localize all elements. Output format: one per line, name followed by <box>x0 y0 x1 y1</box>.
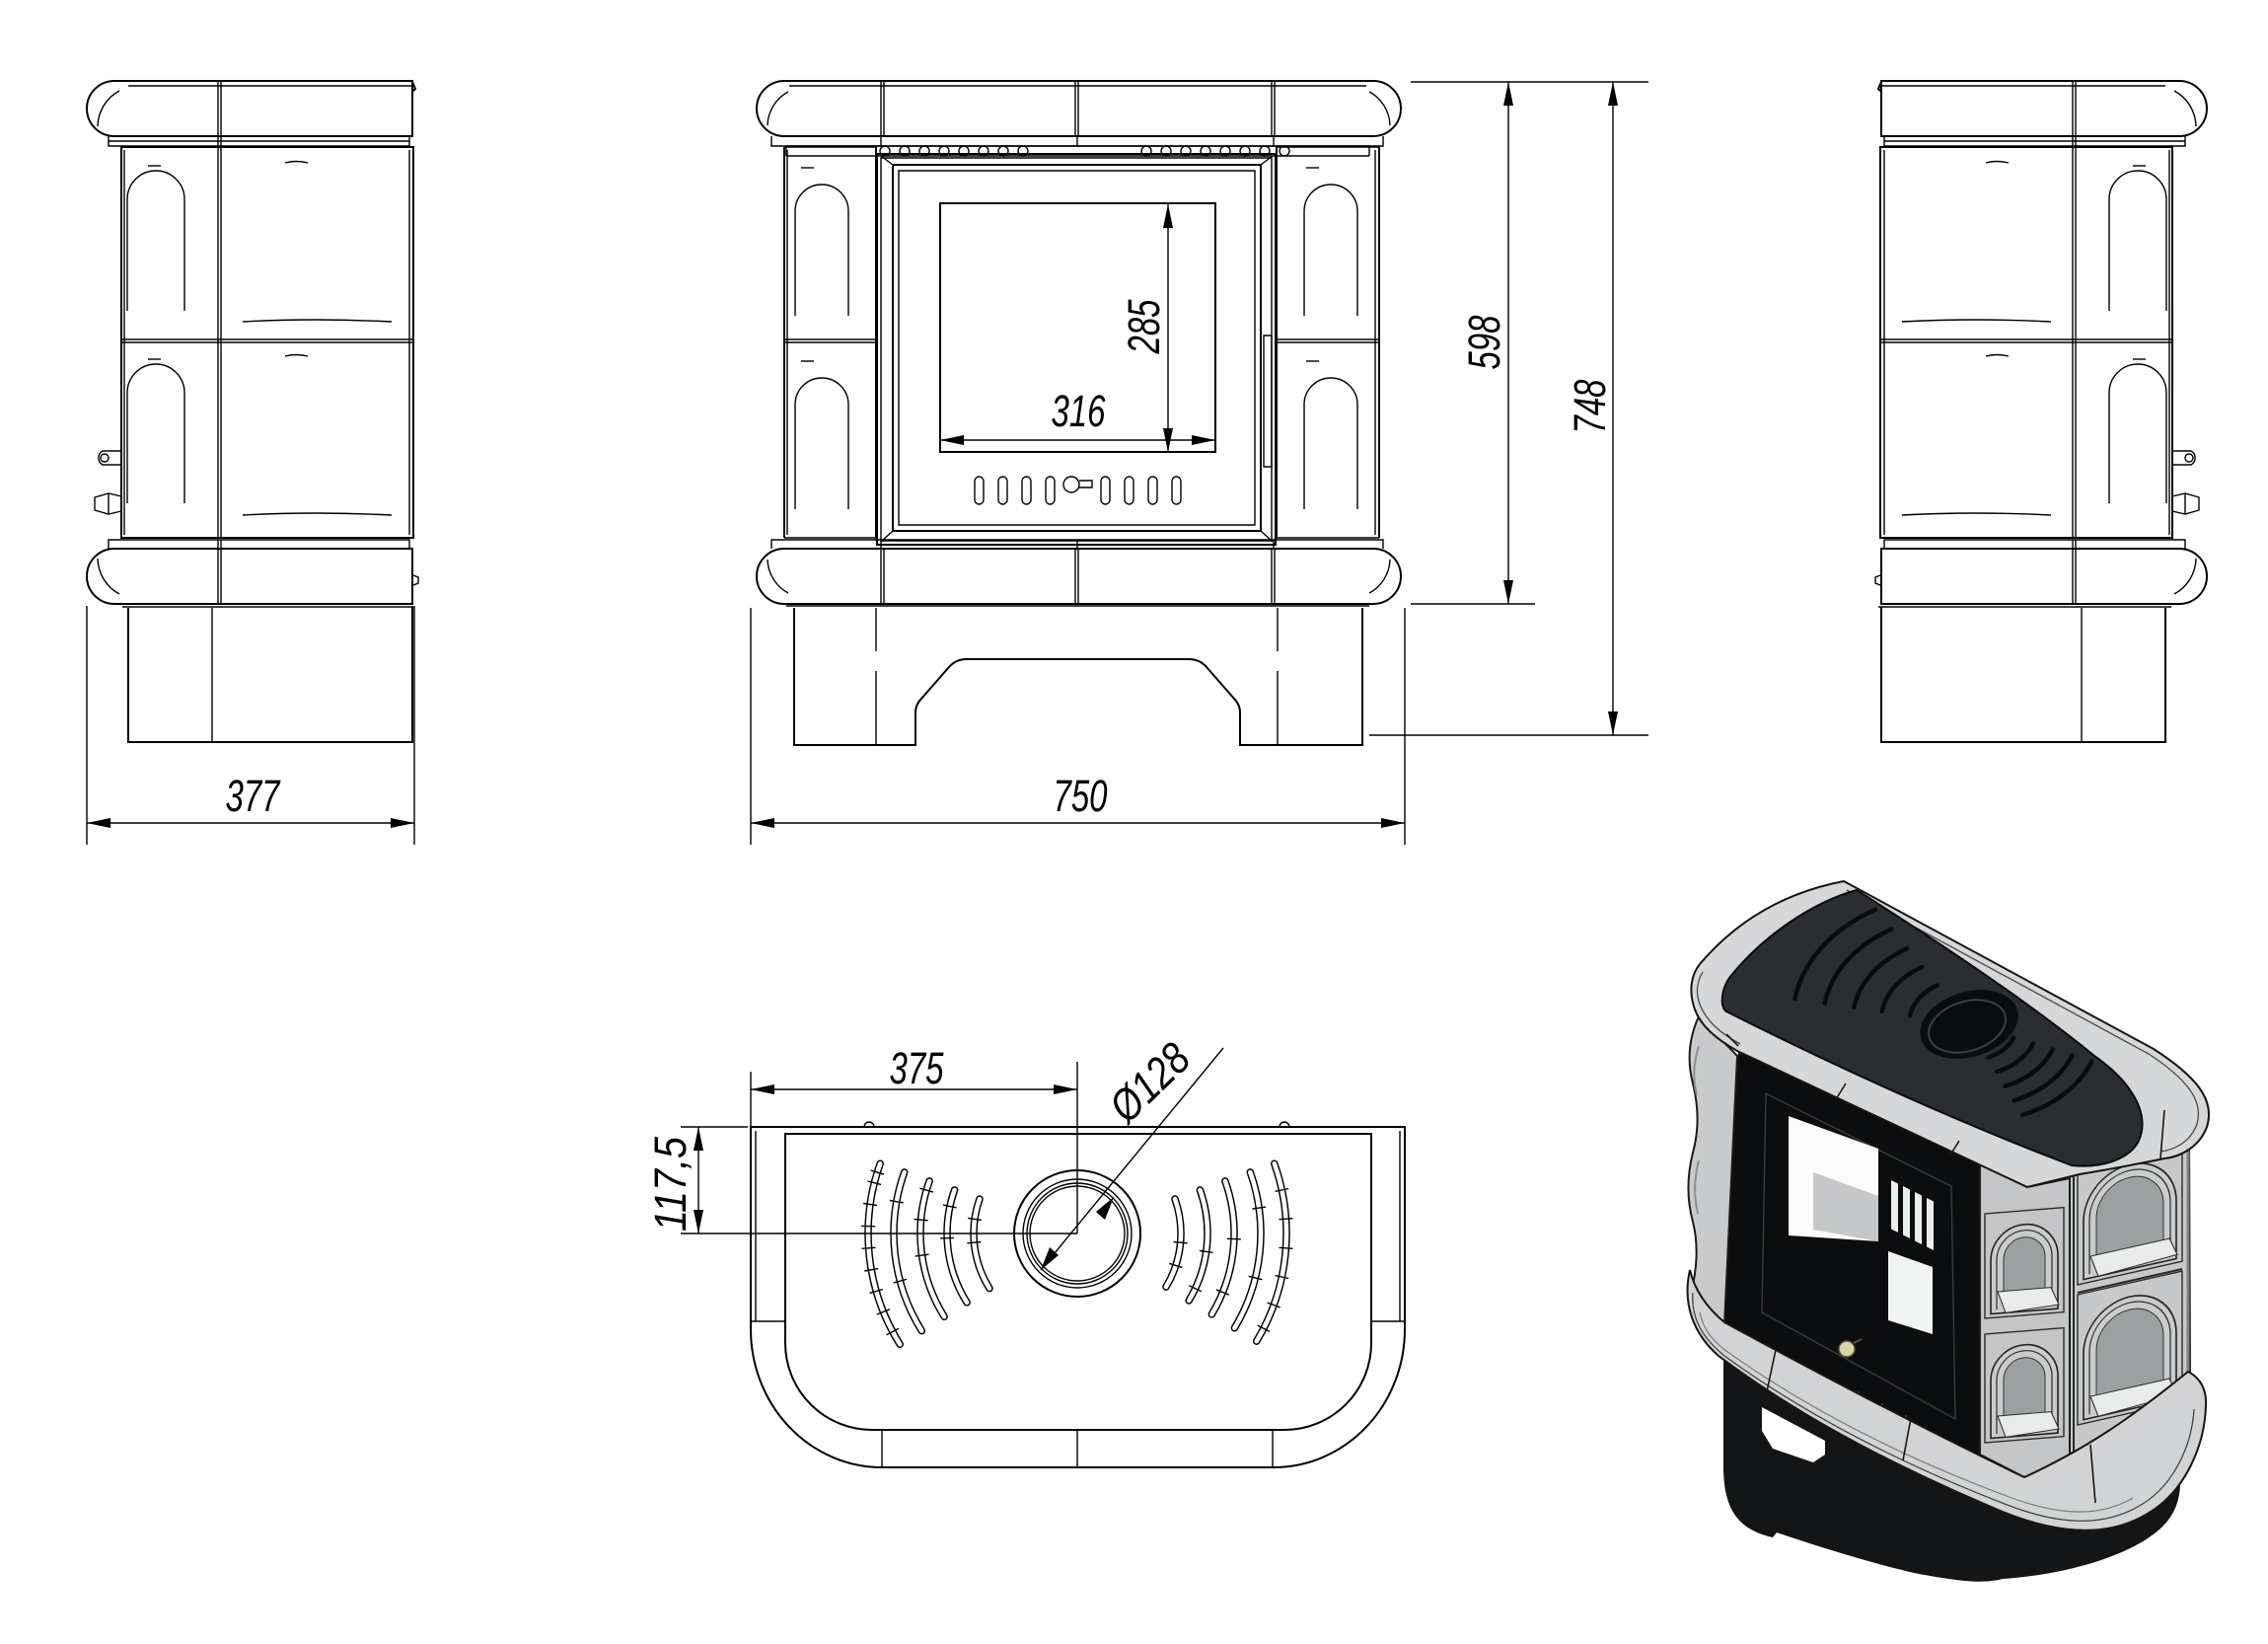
svg-text:377: 377 <box>226 771 281 821</box>
svg-text:598: 598 <box>1459 316 1509 370</box>
svg-text:117,5: 117,5 <box>645 1136 695 1232</box>
svg-text:375: 375 <box>890 1043 945 1093</box>
svg-text:316: 316 <box>1052 386 1107 436</box>
svg-text:748: 748 <box>1565 380 1615 434</box>
svg-text:750: 750 <box>1054 771 1108 821</box>
svg-text:285: 285 <box>1119 299 1169 354</box>
